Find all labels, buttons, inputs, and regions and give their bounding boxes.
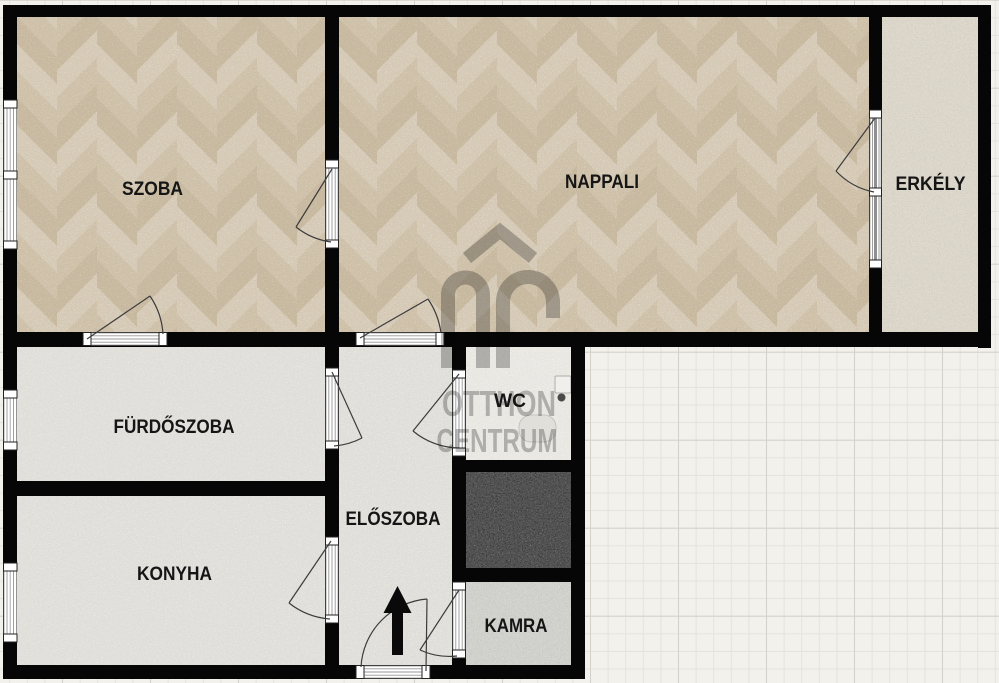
svg-text:KAMRA: KAMRA xyxy=(485,616,548,637)
svg-text:SZOBA: SZOBA xyxy=(122,179,183,200)
svg-text:CENTRUM: CENTRUM xyxy=(437,422,558,459)
svg-text:ELŐSZOBA: ELŐSZOBA xyxy=(346,508,441,530)
svg-text:FÜRDŐSZOBA: FÜRDŐSZOBA xyxy=(114,416,235,438)
svg-text:ERKÉLY: ERKÉLY xyxy=(896,173,966,195)
svg-text:NAPPALI: NAPPALI xyxy=(565,172,639,193)
svg-text:WC: WC xyxy=(494,391,526,412)
svg-text:KONYHA: KONYHA xyxy=(137,564,212,585)
